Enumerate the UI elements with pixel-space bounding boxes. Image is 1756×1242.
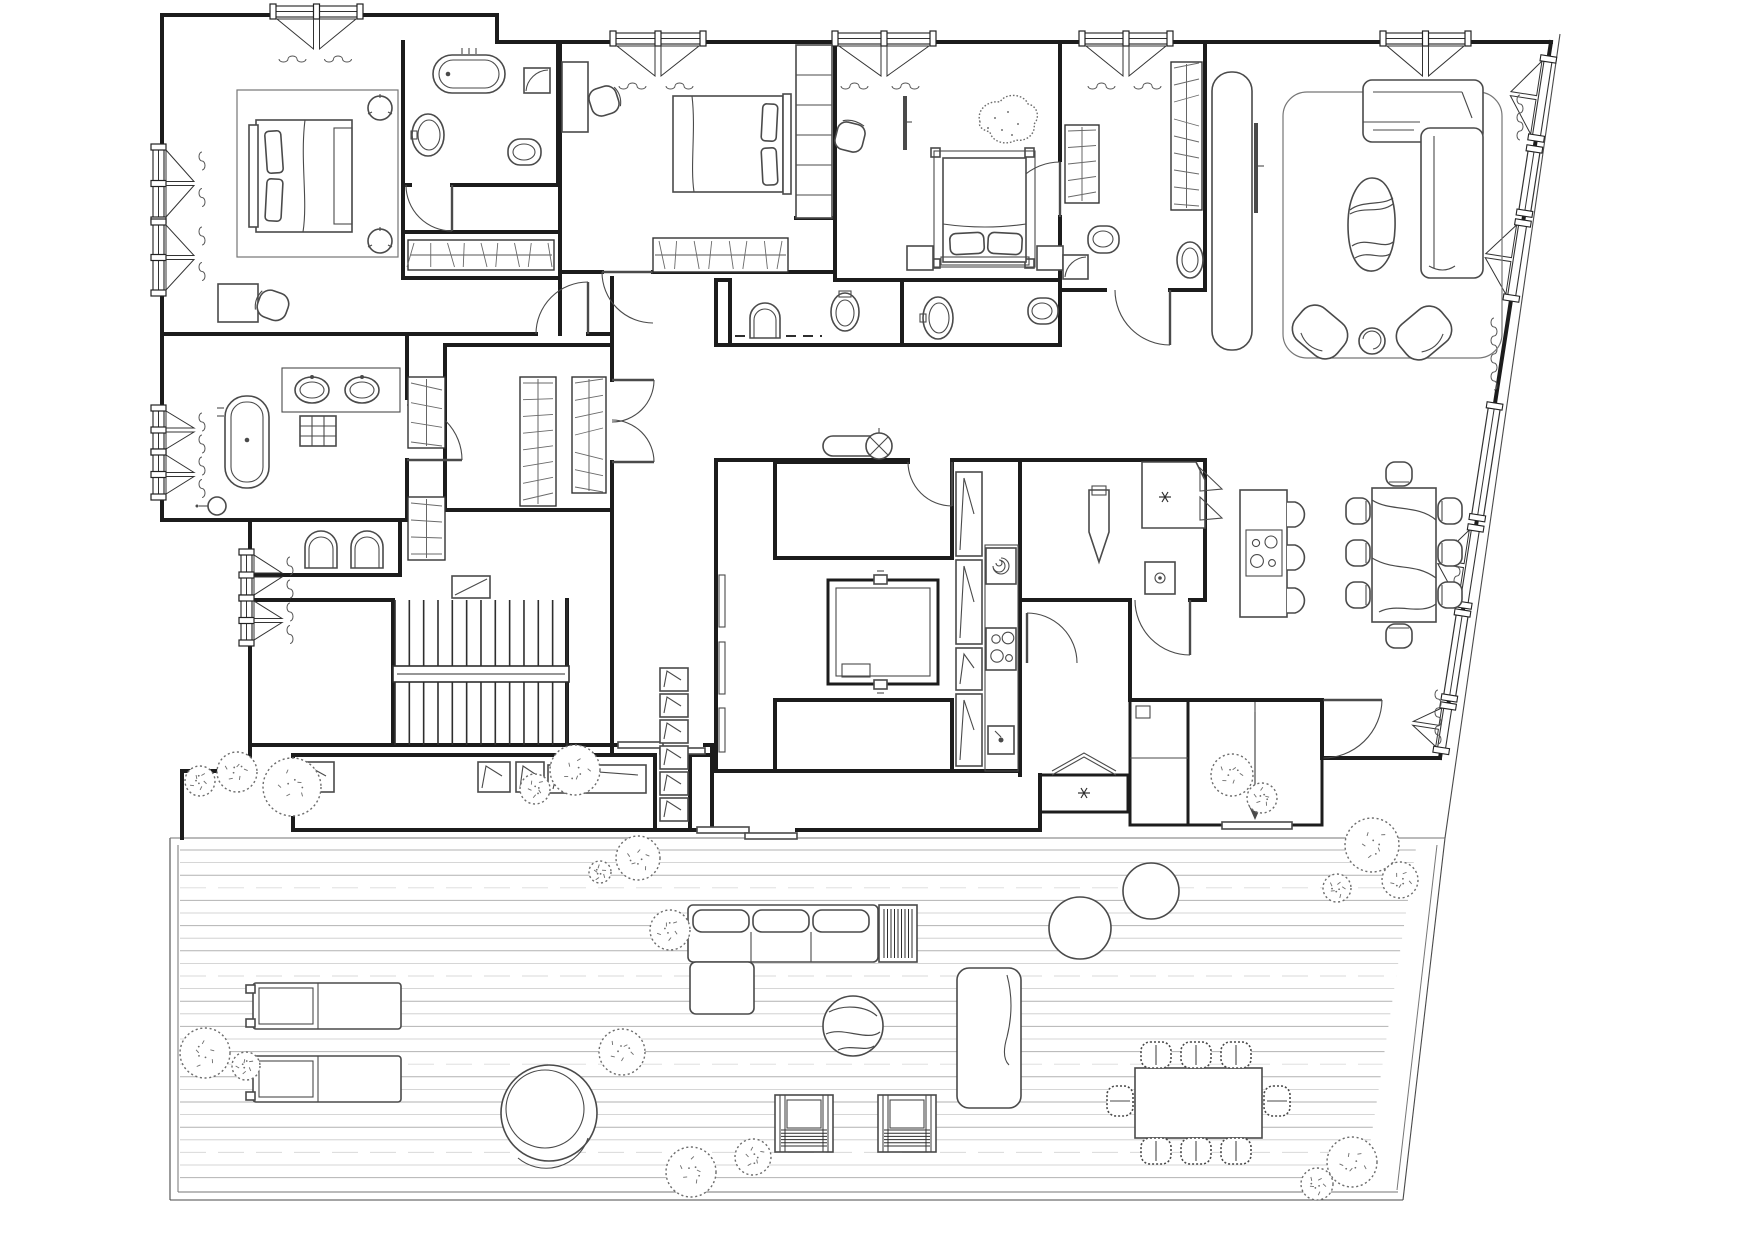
dining-area	[1346, 462, 1462, 648]
terrace	[246, 863, 1290, 1168]
shower-tray	[300, 416, 336, 446]
tv-pod-bathroom	[1063, 226, 1203, 279]
master-bedroom	[218, 90, 398, 324]
utility-sink	[1145, 562, 1175, 594]
tv-wall-mounted	[903, 96, 907, 150]
cooktop	[986, 628, 1016, 670]
floor-mat	[452, 576, 490, 598]
shower	[524, 68, 550, 93]
daybed	[957, 968, 1021, 1108]
kitchen-counter	[985, 545, 1018, 771]
kitchen	[823, 428, 1018, 771]
desk	[218, 284, 258, 322]
ensuite-bathroom-3	[920, 297, 1058, 339]
washing-machine	[986, 548, 1016, 584]
double-vanity	[282, 368, 400, 412]
ensuite-bathroom-2	[750, 291, 859, 338]
tall-cabinets	[956, 472, 982, 766]
guest-wc	[305, 531, 490, 598]
bedroom-2	[562, 45, 832, 218]
planter-pot	[1123, 863, 1179, 919]
cold-room	[1040, 753, 1128, 812]
ironing-board	[1089, 486, 1109, 562]
floor-plan-drawing	[0, 0, 1756, 1242]
floor-plan-page	[0, 0, 1756, 1242]
side-table	[1359, 328, 1385, 354]
chaise-module	[690, 962, 754, 1014]
bar-stool	[1287, 502, 1304, 527]
desk-chair	[586, 83, 624, 119]
bed-2	[673, 94, 791, 194]
bar-stool	[1287, 588, 1304, 613]
sliding-door-terrace-hall	[697, 827, 797, 839]
kitchen-island	[1240, 490, 1304, 617]
washbasin	[411, 114, 444, 156]
marble-ball-table	[823, 996, 883, 1056]
canopy-bed	[931, 148, 1035, 268]
master-bathroom	[411, 48, 550, 165]
hall-cabinet-column	[660, 668, 688, 821]
corner-fridge-unit	[1142, 462, 1222, 528]
nightstand	[907, 246, 933, 270]
master-bed	[249, 120, 352, 232]
sheepskin-rug	[979, 95, 1037, 142]
nightstand	[1037, 246, 1063, 270]
glass-core-room	[828, 571, 938, 693]
bathtub	[433, 48, 505, 93]
kitchen-sink	[988, 726, 1014, 754]
bedside-table	[368, 227, 392, 253]
entry-threshold	[1222, 822, 1292, 829]
pantry-laundry	[1089, 462, 1222, 594]
sun-lounger	[246, 983, 401, 1029]
bedside-table	[368, 94, 392, 120]
sun-lounger	[246, 1056, 401, 1102]
extractor-hood	[823, 428, 892, 459]
outdoor-dining-set	[1107, 1042, 1290, 1164]
plant-stand	[196, 497, 227, 515]
tv-pod	[1212, 72, 1264, 350]
family-bathroom	[196, 368, 401, 515]
freestanding-tub	[217, 396, 269, 488]
lounge-armchair	[1390, 300, 1458, 367]
tall-wardrobe	[796, 45, 832, 218]
wicker-armchair	[878, 1095, 936, 1152]
snowflake-symbol	[1078, 788, 1090, 798]
staircase	[393, 600, 569, 745]
desk-chair	[833, 118, 868, 154]
living-room	[1283, 80, 1502, 366]
tv-wall-mounted	[1254, 123, 1258, 213]
desk	[562, 62, 588, 132]
bedroom-3	[833, 95, 1063, 270]
toilet	[508, 139, 541, 165]
wicker-armchair	[775, 1095, 833, 1152]
dining-table-marble	[1372, 488, 1436, 622]
planter-pot	[1049, 897, 1111, 959]
coffee-table-organic	[1348, 178, 1395, 271]
bar-stool	[1287, 545, 1304, 570]
